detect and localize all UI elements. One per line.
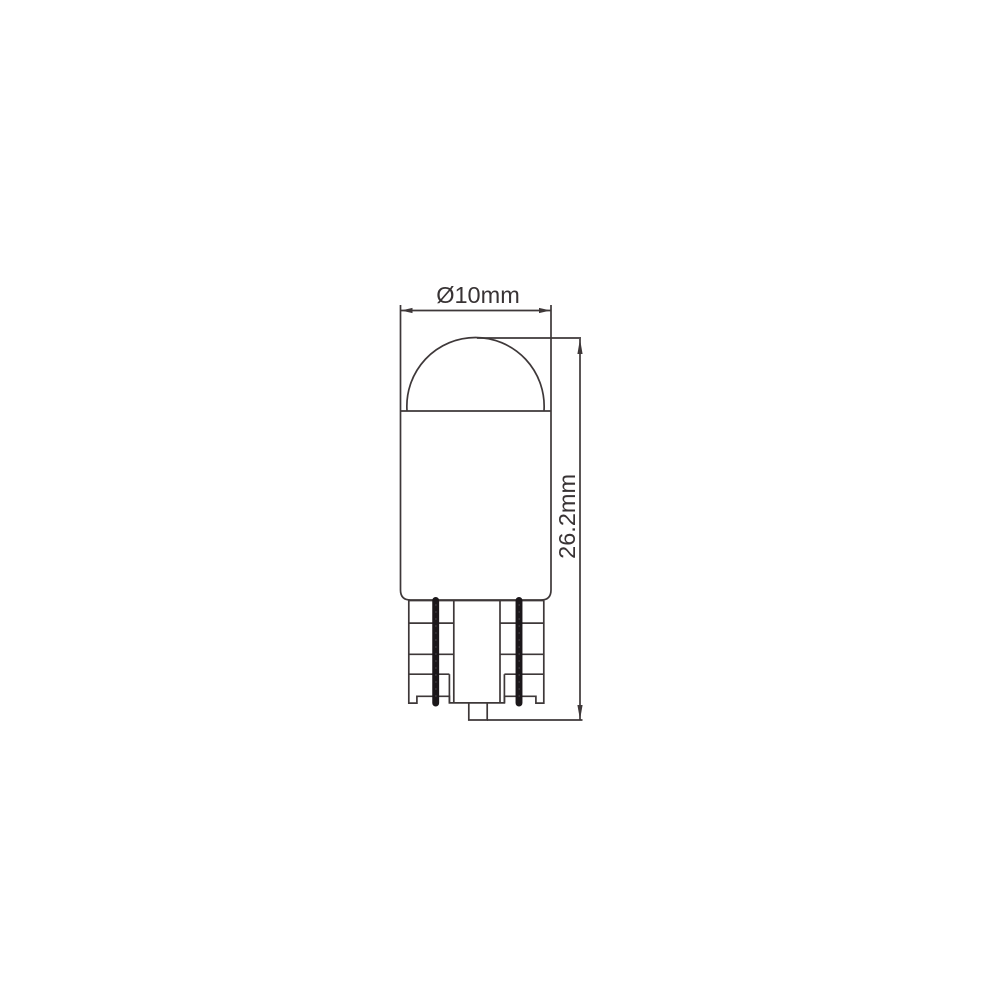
svg-text:Ø10mm: Ø10mm — [436, 282, 520, 308]
svg-text:26.2mm: 26.2mm — [554, 474, 580, 559]
